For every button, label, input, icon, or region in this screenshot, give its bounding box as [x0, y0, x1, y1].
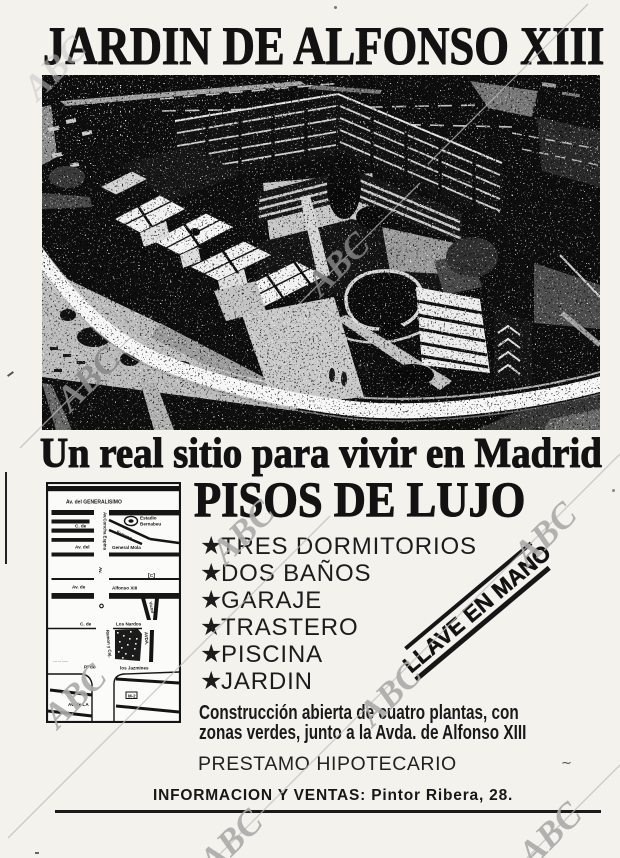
svg-text:.... ... ......: .... ... ...... — [53, 659, 68, 663]
svg-text:General Mola: General Mola — [112, 545, 141, 550]
svg-text:Av. del GENERALISIMO: Av. del GENERALISIMO — [66, 500, 122, 506]
svg-text:Av.Concha Espina: Av.Concha Espina — [103, 512, 108, 551]
svg-text:M-2: M-2 — [128, 694, 136, 699]
svg-text:Av. del: Av. del — [75, 545, 90, 550]
svg-text:Av.: Av. — [98, 567, 103, 574]
svg-text:ABC: ABC — [509, 793, 590, 858]
svg-text:Av. de LA: Av. de LA — [68, 702, 89, 707]
svg-text:Pº de: Pº de — [84, 665, 96, 670]
svg-text:AVDA.: AVDA. — [144, 632, 150, 646]
svg-text:los Jazmines: los Jazmines — [120, 666, 149, 671]
svg-text:Los Nardos: Los Nardos — [116, 622, 142, 627]
svg-text:Estadio: Estadio — [140, 516, 157, 521]
svg-text:C. de: C. de — [75, 524, 87, 529]
svg-text:Av. de: Av. de — [72, 585, 86, 590]
svg-text:C. de: C. de — [80, 622, 92, 627]
svg-text:Bernabeu: Bernabeu — [140, 522, 161, 527]
svg-text:Alfonso XIII: Alfonso XIII — [112, 586, 137, 591]
